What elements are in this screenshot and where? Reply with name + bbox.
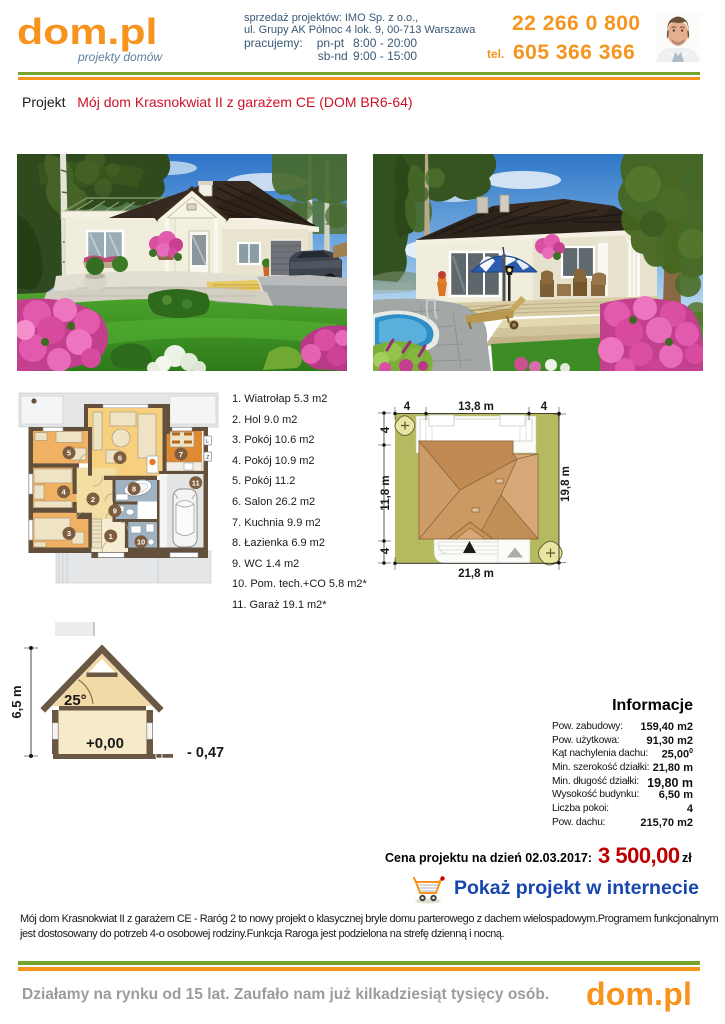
svg-text:7: 7 <box>179 450 183 459</box>
svg-text:4: 4 <box>404 401 411 413</box>
svg-text:4: 4 <box>380 547 392 554</box>
svg-text:4: 4 <box>380 426 392 433</box>
svg-text:13,8 m: 13,8 m <box>458 401 494 413</box>
svg-text:9: 9 <box>113 507 117 516</box>
svg-text:11: 11 <box>192 479 200 488</box>
svg-text:4: 4 <box>541 401 548 413</box>
svg-text:3: 3 <box>67 529 71 538</box>
svg-text:1: 1 <box>109 532 113 541</box>
svg-text:10: 10 <box>137 538 145 547</box>
svg-text:- 0,47: - 0,47 <box>187 745 224 761</box>
svg-text:11,8 m: 11,8 m <box>380 475 392 510</box>
svg-text:25°: 25° <box>64 692 87 709</box>
svg-text:21,8 m: 21,8 m <box>458 568 494 580</box>
svg-text:2: 2 <box>91 495 95 504</box>
svg-text:5: 5 <box>67 449 71 458</box>
svg-text:L: L <box>206 439 209 445</box>
svg-text:19,8 m: 19,8 m <box>560 466 572 502</box>
svg-text:+0,00: +0,00 <box>86 735 124 752</box>
svg-text:6,5 m: 6,5 m <box>10 685 24 718</box>
svg-text:6: 6 <box>118 454 122 463</box>
svg-text:8: 8 <box>132 484 136 493</box>
